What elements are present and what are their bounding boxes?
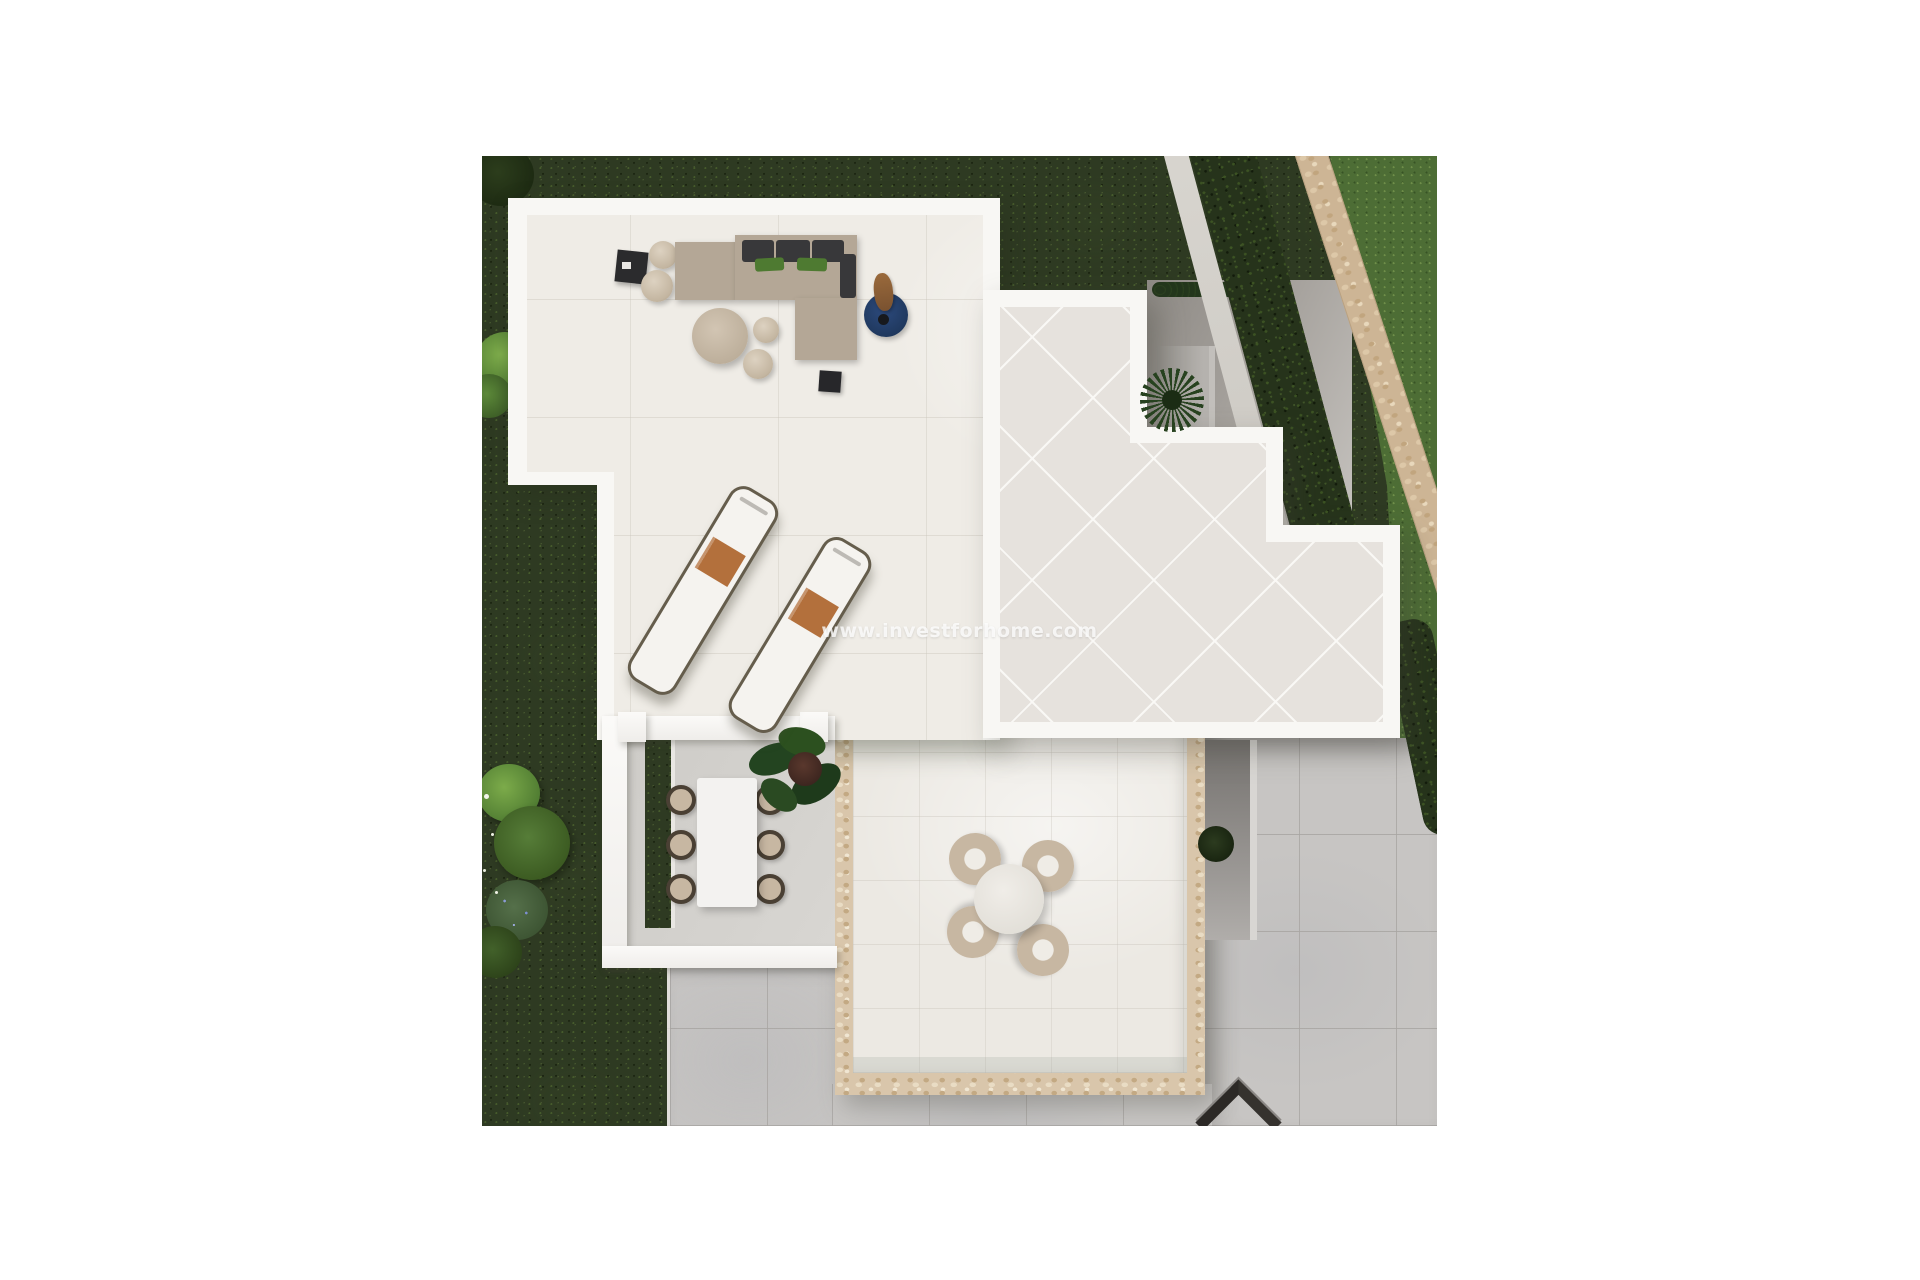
sofa-cushion-green xyxy=(797,257,827,271)
property-aerial-photo: www.investforhome.com xyxy=(482,156,1437,1126)
plant-pot xyxy=(788,752,822,786)
dining-chair xyxy=(666,874,696,904)
palm-plant-center xyxy=(1162,390,1182,410)
page: { "page": { "background_color": "#ffffff… xyxy=(0,0,1920,1280)
ornament-base xyxy=(878,314,889,325)
pouf xyxy=(641,270,673,302)
pergola-bottom-beam xyxy=(602,946,837,968)
sofa-side-cushion xyxy=(840,254,856,298)
sofa-bench xyxy=(675,242,735,300)
sofa-chaise xyxy=(795,298,857,360)
dining-chair xyxy=(666,785,696,815)
pergola-left-beam xyxy=(602,716,627,968)
round-table xyxy=(974,864,1044,934)
lounger-headrest xyxy=(739,496,768,516)
sofa-cushion-green xyxy=(755,257,785,271)
recess-plant xyxy=(1198,826,1234,862)
lounger-towel xyxy=(695,537,746,587)
flower-dots xyxy=(484,794,489,799)
dining-chair xyxy=(755,874,785,904)
lounger-headrest xyxy=(832,547,861,567)
dining-table xyxy=(697,778,757,907)
cube-side-table xyxy=(818,370,841,392)
dining-chair xyxy=(666,830,696,860)
bush-large-lower xyxy=(494,806,570,880)
watermark: www.investforhome.com xyxy=(821,620,1097,642)
coffee-table xyxy=(692,308,748,364)
dining-chair xyxy=(755,830,785,860)
tray-item xyxy=(622,262,631,269)
pouf xyxy=(649,241,677,269)
pouf xyxy=(743,349,773,379)
pouf xyxy=(753,317,779,343)
pergola-pillar-left xyxy=(618,712,646,742)
